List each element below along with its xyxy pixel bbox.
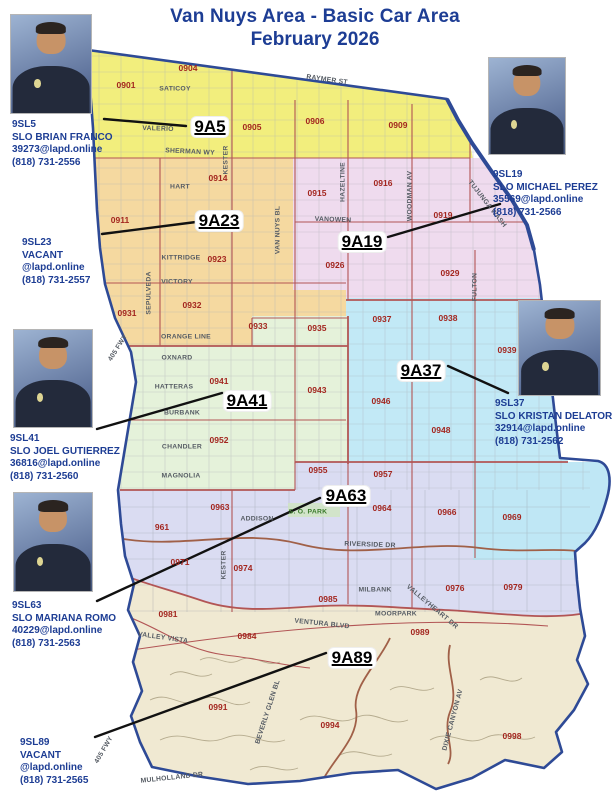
map-zones — [85, 40, 612, 792]
title-line2: February 2026 — [90, 29, 540, 51]
street-grid — [85, 40, 590, 490]
title-line1: Van Nuys Area - Basic Car Area — [90, 6, 540, 28]
map-title: Van Nuys Area - Basic Car Area February … — [90, 6, 540, 51]
map-canvas — [0, 0, 612, 792]
page: RAYMER STSATICOYVALERIOSHERMAN WYKESTERH… — [0, 0, 612, 792]
